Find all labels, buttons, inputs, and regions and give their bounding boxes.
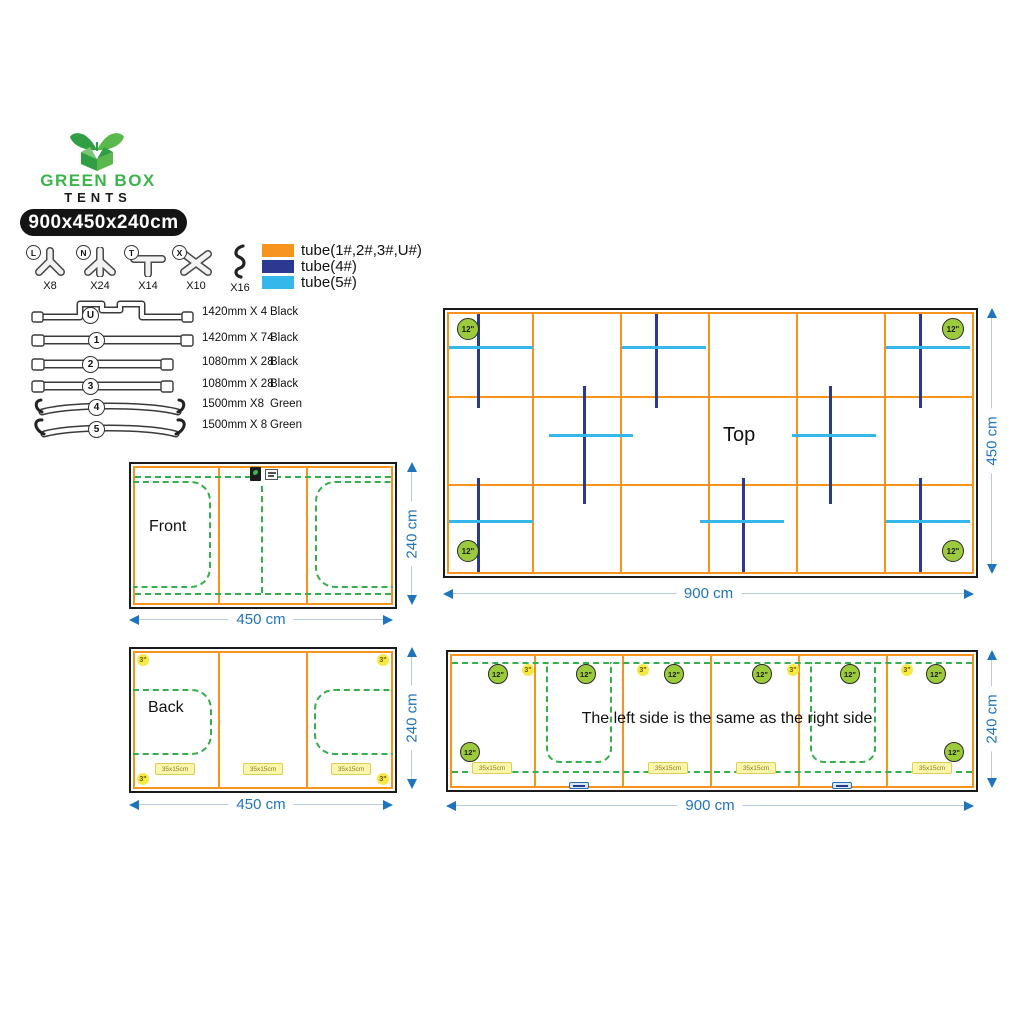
dim-back-width: 450 cm	[129, 799, 393, 811]
tube5-bar	[622, 346, 706, 349]
hook-icon	[230, 243, 250, 279]
tube-number: 5	[88, 421, 105, 438]
vent-3-badge: 3"	[901, 664, 913, 676]
tube-spec: 1420mm X 74	[202, 332, 274, 344]
stitch-line	[135, 476, 391, 478]
size-badge: 900x450x240cm	[20, 209, 187, 236]
window-size-badge: 35x15cm	[648, 762, 688, 774]
tube4-bar	[477, 478, 480, 572]
u-tube-drawing	[30, 297, 195, 325]
vent-3-badge: 3"	[377, 773, 389, 785]
tube5-bar	[549, 434, 633, 437]
panel-label-front: Front	[149, 518, 186, 536]
dim-side-width: 900 cm	[446, 800, 974, 812]
tube-spec: 1500mm X8	[202, 398, 264, 410]
vent-12-badge: 12"	[942, 540, 964, 562]
vent-12-badge: 12"	[840, 664, 860, 684]
window-size-badge: 35x15cm	[912, 762, 952, 774]
tube-color: Black	[270, 332, 298, 344]
dim-side-height: 240 cm	[986, 650, 998, 788]
legend-label: tube(5#)	[301, 274, 357, 291]
vent-12-badge: 12"	[460, 742, 480, 762]
grid-line-orange	[796, 314, 798, 572]
connector-letter: T	[124, 245, 139, 260]
tube5-bar	[700, 520, 784, 523]
tube4-bar	[655, 314, 658, 408]
instruction-sheet: GREEN BOX TENTS 900x450x240cm L X8 N X24…	[0, 0, 1024, 1024]
panel-front: Front	[129, 462, 397, 609]
window-size-badge: 35x15cm	[736, 762, 776, 774]
tube5-bar	[449, 520, 533, 523]
dim-label: 240 cm	[404, 509, 421, 558]
vent-12-badge: 12"	[942, 318, 964, 340]
brand-tagline: TENTS	[33, 190, 163, 205]
connector-X: X X10	[172, 247, 220, 292]
panel-back: 3" 3" 3" 3" 35x15cm 35x15cm 35x15cm Back	[129, 647, 397, 793]
grid-line-orange	[884, 314, 886, 572]
legend-row-tube123u: tube(1#,2#,3#,U#)	[262, 242, 422, 258]
tube-row-5: 5 1500mm X 8 Green	[30, 414, 360, 440]
brand-tag-icon	[250, 467, 261, 481]
stitch-line	[452, 771, 972, 773]
tube-color: Black	[270, 378, 298, 390]
connector-letter: X	[172, 245, 187, 260]
window-size-badge: 35x15cm	[472, 762, 512, 774]
tube-color: Green	[270, 398, 302, 410]
legend-swatch-lightblue	[262, 276, 294, 289]
panel-top: 12" 12" 12" 12" Top	[443, 308, 978, 578]
tube-color: Green	[270, 419, 302, 431]
connector-qty: X14	[124, 280, 172, 292]
tube-row-1: 1 1420mm X 74 Black	[30, 327, 360, 353]
tube4-bar	[583, 386, 586, 504]
vent-3-badge: 3"	[137, 773, 149, 785]
connector-hook: X16	[222, 243, 258, 294]
dim-label: 450 cm	[228, 611, 293, 628]
tube-color: Black	[270, 306, 298, 318]
door-outline	[315, 481, 393, 588]
vent-3-badge: 3"	[637, 664, 649, 676]
dim-label: 900 cm	[677, 797, 742, 814]
panel-side: 12" 12" 12" 12" 12" 12" 12" 12" 3" 3" 3"…	[446, 650, 978, 792]
vent-12-badge: 12"	[488, 664, 508, 684]
stitch-line	[261, 486, 263, 593]
grid-line-orange	[218, 468, 220, 603]
vent-12-badge: 12"	[752, 664, 772, 684]
window-size-badge: 35x15cm	[331, 763, 371, 775]
brand-leaf-box-icon	[66, 124, 128, 172]
connector-L: L X8	[26, 247, 74, 292]
tube-spec: 1080mm X 28	[202, 356, 274, 368]
grid-line-orange	[218, 653, 220, 787]
legend-label: tube(4#)	[301, 258, 357, 275]
dim-back-height: 240 cm	[406, 647, 418, 789]
connector-qty: X8	[26, 280, 74, 292]
vent-3-badge: 3"	[137, 654, 149, 666]
legend-row-tube4: tube(4#)	[262, 258, 357, 274]
tube5-bar	[886, 346, 970, 349]
stitch-line	[135, 593, 391, 595]
panel-label-top: Top	[723, 424, 755, 447]
grid-line-orange	[306, 653, 308, 787]
vent-12-badge: 12"	[944, 742, 964, 762]
tube-number: 1	[88, 332, 105, 349]
tube4-bar	[919, 478, 922, 572]
tube-number: U	[82, 307, 99, 324]
tube4-bar	[829, 386, 832, 504]
grid-line-orange	[306, 468, 308, 603]
connector-letter: N	[76, 245, 91, 260]
panel-label-back: Back	[148, 699, 184, 717]
vent-12-badge: 12"	[576, 664, 596, 684]
tube5-bar	[449, 346, 533, 349]
connector-qty: X24	[76, 280, 124, 292]
straight-tube-drawing	[30, 327, 195, 353]
tube-spec: 1420mm X 4	[202, 306, 267, 318]
tube-spec: 1080mm X 28	[202, 378, 274, 390]
vent-3-badge: 3"	[787, 664, 799, 676]
legend-label: tube(1#,2#,3#,U#)	[301, 242, 422, 259]
dim-label: 240 cm	[404, 693, 421, 742]
side-note: The left side is the same as the right s…	[478, 710, 976, 728]
zipper-tag-icon	[569, 782, 589, 789]
tube4-bar	[742, 478, 745, 572]
window-size-badge: 35x15cm	[155, 763, 195, 775]
window-outline	[314, 689, 393, 755]
dim-top-height: 450 cm	[986, 308, 998, 574]
dim-top-width: 900 cm	[443, 588, 974, 600]
legend-swatch-orange	[262, 244, 294, 257]
grid-line-orange	[620, 314, 622, 572]
tube-color: Black	[270, 356, 298, 368]
dim-label: 240 cm	[984, 694, 1001, 743]
dim-front-width: 450 cm	[129, 614, 393, 626]
connector-qty: X16	[222, 282, 258, 294]
tube4-bar	[919, 314, 922, 408]
grid-line-orange	[708, 314, 710, 572]
dim-label: 900 cm	[676, 585, 741, 602]
brand-name: GREEN BOX	[33, 171, 163, 191]
vent-12-badge: 12"	[926, 664, 946, 684]
dim-front-height: 240 cm	[406, 462, 418, 605]
vent-3-badge: 3"	[522, 664, 534, 676]
legend-row-tube5: tube(5#)	[262, 274, 357, 290]
tube-number: 2	[82, 356, 99, 373]
dim-label: 450 cm	[228, 796, 293, 813]
orange-frame	[447, 312, 974, 574]
connector-T: T X14	[124, 247, 172, 292]
vent-12-badge: 12"	[457, 318, 479, 340]
connector-letter: L	[26, 245, 41, 260]
grid-line-orange	[449, 396, 972, 398]
vent-12-badge: 12"	[457, 540, 479, 562]
vent-12-badge: 12"	[664, 664, 684, 684]
legend-swatch-darkblue	[262, 260, 294, 273]
tube-row-U: U 1420mm X 4 Black	[30, 297, 360, 323]
grid-line-orange	[532, 314, 534, 572]
tube5-bar	[792, 434, 876, 437]
vent-3-badge: 3"	[377, 654, 389, 666]
curved-pole-drawing	[30, 414, 190, 440]
connector-N: N X24	[76, 247, 124, 292]
tube-spec: 1500mm X 8	[202, 419, 267, 431]
window-size-badge: 35x15cm	[243, 763, 283, 775]
zipper-tag-icon	[832, 782, 852, 789]
connector-qty: X10	[172, 280, 220, 292]
tube5-bar	[886, 520, 970, 523]
label-tag-icon	[265, 469, 278, 480]
grid-line-orange	[449, 484, 972, 486]
dim-label: 450 cm	[984, 416, 1001, 465]
